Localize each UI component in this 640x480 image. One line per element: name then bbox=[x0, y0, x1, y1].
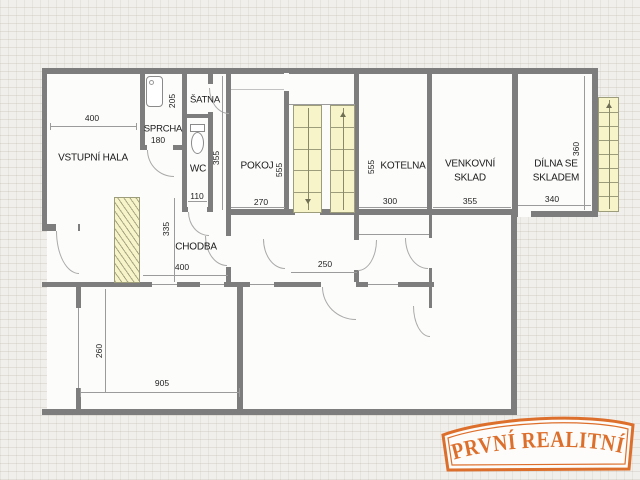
dim-bottom-260: 260 bbox=[94, 344, 104, 358]
wall-kotelna-right bbox=[427, 68, 432, 215]
wall-topband-bottom bbox=[226, 209, 518, 215]
room-label-kotelna: KOTELNA bbox=[380, 161, 425, 172]
room-label-sprcha: SPRCHA bbox=[144, 124, 182, 135]
door-gap-pokoj bbox=[284, 73, 289, 91]
line-threshold bbox=[359, 234, 429, 235]
dimline-250 bbox=[291, 272, 357, 273]
dimline-270 bbox=[231, 207, 285, 208]
room-field-bottom-band bbox=[47, 287, 512, 409]
stair-centerline bbox=[343, 108, 344, 210]
wall-bottomroom-west-upper bbox=[76, 282, 81, 308]
door-gap-dilna bbox=[518, 211, 531, 217]
dim-sprcha-180: 180 bbox=[151, 135, 165, 145]
room-label-dilna-1: DÍLNA SE bbox=[534, 159, 577, 170]
stair-centerline bbox=[308, 108, 309, 210]
room-label-chodba: CHODBA bbox=[175, 242, 217, 253]
window-line bbox=[200, 284, 224, 285]
dimline-110 bbox=[188, 201, 207, 202]
dim-bottom-905: 905 bbox=[155, 378, 169, 388]
room-label-dilna-2: SKLADEM bbox=[533, 173, 579, 184]
dimline-355 bbox=[222, 76, 223, 210]
wall-left bbox=[42, 68, 47, 231]
window-line bbox=[152, 284, 177, 285]
dimline-360 bbox=[584, 76, 585, 210]
dim-hala-400: 400 bbox=[85, 113, 99, 123]
dimline-tick bbox=[239, 388, 240, 397]
agency-logo: PRVNÍ REALITNÍ bbox=[438, 409, 638, 475]
dim-wc-110: 110 bbox=[190, 191, 204, 201]
dimline-tick bbox=[136, 123, 137, 130]
door-gap-hala-nook bbox=[56, 224, 78, 231]
wall-dilna-left bbox=[512, 68, 518, 217]
stairs-down-arrow-icon bbox=[305, 199, 311, 204]
room-label-vstupni-hala: VSTUPNÍ HALA bbox=[58, 153, 128, 164]
dim-sprcha-205: 205 bbox=[167, 94, 177, 108]
wall-satna-wc-divider bbox=[182, 114, 213, 118]
toilet-bowl-icon bbox=[191, 132, 204, 154]
wall-bottom-divider bbox=[237, 285, 243, 409]
dimline-tick bbox=[80, 388, 81, 397]
stairs-up-arrow-icon bbox=[606, 103, 612, 108]
dim-kotelna-300: 300 bbox=[383, 196, 397, 206]
dim-dilna-360: 360 bbox=[571, 142, 581, 156]
window-line bbox=[368, 284, 398, 285]
stair-centerline bbox=[609, 100, 610, 209]
wall-wcblock-left bbox=[182, 68, 187, 212]
window-line bbox=[78, 308, 79, 388]
room-label-satna: ŠATNA bbox=[190, 95, 220, 106]
dim-dilna-340: 340 bbox=[545, 194, 559, 204]
staircase-winder bbox=[114, 197, 140, 283]
dimline-905 bbox=[80, 392, 240, 393]
dimline-300 bbox=[359, 207, 427, 208]
dim-venkovni-355: 355 bbox=[463, 196, 477, 206]
dim-pokoj-270: 270 bbox=[254, 197, 268, 207]
staircase-flight-down bbox=[293, 105, 322, 213]
window-line bbox=[250, 284, 274, 285]
floorplan-image: VSTUPNÍ HALA SPRCHA ŠATNA WC POKOJ KOTEL… bbox=[0, 0, 640, 480]
dimline-chodba-400 bbox=[143, 275, 228, 276]
dim-chodba-400: 400 bbox=[175, 262, 189, 272]
staircase-flight-up bbox=[330, 105, 355, 213]
room-label-venkovni-sklad-1: VENKOVNÍ bbox=[445, 159, 495, 170]
stairs-up-arrow-icon bbox=[340, 112, 346, 117]
dimline-355v bbox=[433, 207, 511, 208]
dimline-260 bbox=[105, 289, 106, 392]
room-label-pokoj: POKOJ bbox=[241, 161, 274, 172]
dim-satna-355: 355 bbox=[211, 151, 221, 165]
dim-chodba-335: 335 bbox=[161, 222, 171, 236]
line-pokoj-top bbox=[231, 89, 285, 90]
wall-hala-sprcha bbox=[140, 68, 145, 150]
shower-drain-icon bbox=[149, 80, 154, 85]
dim-stairhall-250: 250 bbox=[318, 259, 332, 269]
dimline-hala-400 bbox=[50, 126, 137, 127]
toilet-tank-icon bbox=[190, 124, 205, 132]
dimline-tick bbox=[50, 123, 51, 130]
room-label-wc: WC bbox=[190, 164, 206, 175]
dimline-340 bbox=[518, 205, 591, 206]
staircase-external bbox=[598, 97, 619, 212]
dim-pokoj-555: 555 bbox=[274, 163, 284, 177]
dim-kotelna-555: 555 bbox=[366, 160, 376, 174]
room-label-venkovni-sklad-2: SKLAD bbox=[454, 173, 486, 184]
wall-right-bottom bbox=[511, 211, 517, 415]
